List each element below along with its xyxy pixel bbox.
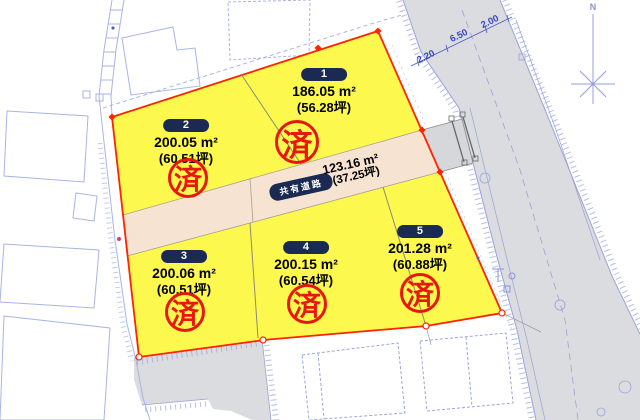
lot-number-badge: 4 (283, 241, 329, 254)
sold-stamp-lot1: 済 (275, 120, 319, 164)
lot-area-m2: 200.05 m² (154, 134, 218, 151)
sold-stamp-lot3: 済 (165, 292, 205, 332)
sold-stamp-lot5: 済 (400, 273, 440, 313)
sold-stamp-lot2: 済 (168, 158, 208, 198)
dashed-buildings (302, 333, 513, 420)
plan-geometry-svg (0, 0, 640, 420)
lot-number-badge: 3 (161, 250, 207, 263)
north-arrow-icon (571, 14, 615, 104)
lot-label-4: 4 200.15 m² (60.54坪) (274, 241, 338, 288)
lot-area-m2: 186.05 m² (292, 83, 356, 100)
lot-area-tsubo: (56.28坪) (292, 100, 356, 115)
lot-area-m2: 200.06 m² (152, 265, 216, 282)
lot-label-5: 5 201.28 m² (60.88坪) (388, 225, 452, 272)
sold-stamp-lot4: 済 (287, 284, 327, 324)
north-label: N (590, 2, 597, 12)
lot-label-3: 3 200.06 m² (60.51坪) (152, 250, 216, 297)
lot-area-m2: 200.15 m² (274, 256, 338, 273)
lot-number-badge: 2 (163, 119, 209, 132)
land-subdivision-plan: 1 186.05 m² (56.28坪) 2 200.05 m² (60.51坪… (0, 0, 640, 420)
lot-label-1: 1 186.05 m² (56.28坪) (292, 68, 356, 115)
lot-area-m2: 201.28 m² (388, 240, 452, 257)
lot-area-tsubo: (60.88坪) (388, 257, 452, 272)
lot-number-badge: 1 (301, 68, 347, 81)
lot-number-badge: 5 (397, 225, 443, 238)
